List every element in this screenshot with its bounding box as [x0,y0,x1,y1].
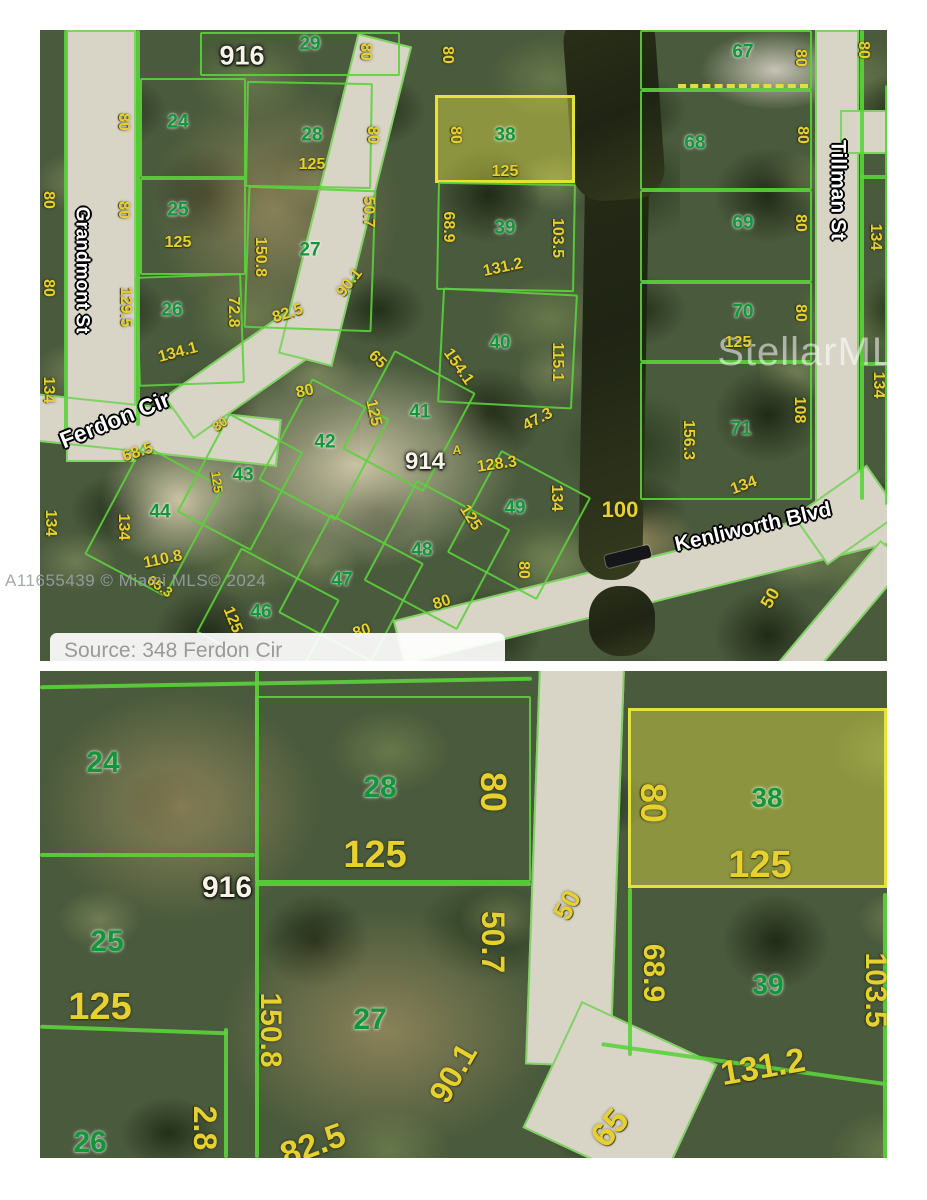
dimension-125: 125 [299,157,326,173]
mls-watermark: A11655439 © Miami MLS© 2024 [5,571,266,591]
bottom-map-panel: 242825272638399168012580125125150.850.79… [40,671,887,1158]
lot-number-43: 43 [232,466,253,485]
lot-number-46: 46 [250,603,271,622]
lot-number-27: 27 [353,1005,386,1035]
parcel-boundary [860,175,886,179]
parcel-boundary [40,853,255,857]
road-tillman-st [815,30,859,515]
dashed-boundary [678,84,808,88]
parcel-boundary [885,85,887,505]
lot-number-68: 68 [684,134,705,153]
dimension-125: 125 [165,235,192,251]
parcel-boundary [640,90,812,190]
lot-number-24: 24 [86,748,119,778]
dimension-50.7: 50.7 [477,911,509,973]
parcel-boundary [640,362,812,500]
dimension-125: 125 [492,164,519,180]
parcel-boundary [224,1028,228,1158]
dimension-134: 134 [548,485,564,512]
dimension-80: 80 [635,783,671,823]
parcel-boundary [640,190,812,282]
dimension-115.1: 115.1 [549,342,565,381]
dimension-103.5: 103.5 [549,218,565,258]
dimension-2.8: 2.8 [189,1106,221,1150]
dimension-80: 80 [439,46,455,64]
dimension-50: 50 [757,585,783,611]
street-label-grandmont-st: Grandmont St [73,207,92,334]
dimension-80: 80 [792,49,808,67]
dimension-125: 125 [725,335,752,351]
dimension-80: 80 [792,304,808,322]
canal [589,586,655,656]
block-number-916: 916 [219,43,264,70]
dimension-134: 134 [42,510,58,537]
parcel-boundary [628,888,632,1056]
parcel-boundary [135,273,245,387]
dimension-80: 80 [357,43,373,61]
dimension-125: 125 [728,846,791,884]
parcel-boundary [140,178,246,275]
lot-number-25: 25 [90,927,123,957]
lot-number-24: 24 [167,113,188,132]
lot-number-28: 28 [363,773,396,803]
dimension-80: 80 [855,41,871,59]
lot-number-48: 48 [411,541,432,560]
lot-number-29: 29 [299,35,320,54]
dimension-134: 134 [867,224,883,251]
dimension-100: 100 [602,499,639,521]
dimension-156.3: 156.3 [680,420,696,460]
dimension-129.5: 129.5 [117,287,133,327]
dimension-125: 125 [343,836,406,874]
dimension-80: 80 [515,561,531,579]
road-vertical [525,671,625,1067]
parcel-boundary [40,677,532,690]
parcel-boundary [140,78,246,178]
dimension-131.2: 131.2 [718,1043,808,1091]
listing-photo-page: Grandmont StFerdon CirKenliworth BlvdTil… [0,0,927,1200]
lot-number-39: 39 [752,971,783,999]
dimension-68.9: 68.9 [638,944,668,1002]
lot-number-40: 40 [489,334,510,353]
dimension-50.7: 50.7 [360,196,376,227]
lot-number-42: 42 [314,433,335,452]
dimension-80: 80 [40,191,56,209]
dimension-150.8: 150.8 [255,992,285,1067]
dimension-47.3: 47.3 [520,406,555,435]
parcel-boundary [860,30,864,500]
lot-number-47: 47 [331,571,352,590]
lot-number-27: 27 [299,241,320,260]
dimension-80: 80 [792,214,808,232]
dimension-108: 108 [791,397,807,424]
dimension-80: 80 [364,126,380,144]
lot-number-38: 38 [494,126,515,145]
lot-number-25: 25 [167,201,188,220]
block-number-916: 916 [202,873,252,903]
source-address-label: Source: 348 Ferdon Cir [64,639,282,663]
dimension-125: 125 [209,470,225,493]
parcel-boundary [64,30,68,432]
lot-number-44: 44 [149,503,170,522]
lot-number-67: 67 [732,43,753,62]
dimension-125: 125 [68,988,131,1026]
lot-number-69: 69 [732,214,753,233]
lot-number-70: 70 [732,303,753,322]
lot-number-49: 49 [504,499,525,518]
lot-number-26: 26 [161,301,182,320]
source-address-badge: Source: 348 Ferdon Cir [50,633,505,669]
lot-number-71: 71 [730,420,751,439]
dimension-80: 80 [475,772,511,812]
lot-number-26: 26 [73,1128,106,1158]
parcel-boundary [255,882,531,886]
top-map-panel: Grandmont StFerdon CirKenliworth BlvdTil… [40,30,887,661]
dimension-150.8: 150.8 [252,237,268,277]
lot-number-41: 41 [409,403,430,422]
dimension-134: 134 [115,514,131,541]
street-label-tillman-st: Tillman St [828,140,849,240]
lot-number-39: 39 [494,219,515,238]
parcel-boundary [640,30,812,90]
dimension-80: 80 [115,113,131,131]
dimension-103.5: 103.5 [860,952,887,1027]
lot-number-28: 28 [301,126,322,145]
dimension-a: A [453,444,462,456]
dimension-80: 80 [115,201,131,219]
dimension-68.9: 68.9 [440,211,456,242]
dimension-80: 80 [794,126,810,144]
block-number-914: 914 [405,450,445,474]
dimension-134: 134 [870,372,886,399]
dimension-72.8: 72.8 [225,296,241,327]
dimension-134: 134 [40,377,56,404]
dimension-80: 80 [447,126,463,144]
dimension-80: 80 [40,279,56,297]
lot-number-38: 38 [751,784,782,812]
